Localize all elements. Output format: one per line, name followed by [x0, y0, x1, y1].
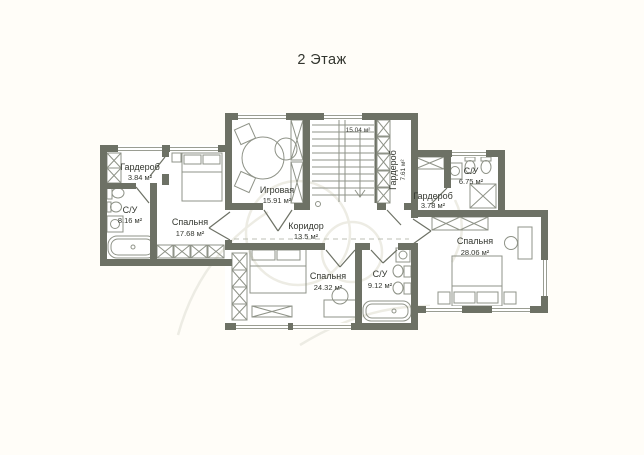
area-bathroom-right: 6.75 м² [459, 177, 484, 186]
area-wardrobe-right: 3.78 м² [421, 201, 446, 210]
area-corridor: 13.5 м² [294, 232, 319, 241]
label-bathroom-bottom: С/У [373, 269, 388, 279]
area-playroom: 15.91 м² [263, 196, 292, 205]
label-bathroom-right: С/У [464, 166, 479, 176]
label-bathroom-left: С/У [123, 205, 138, 215]
label-wardrobe-right: Гардероб [413, 191, 453, 201]
area-bedroom-right: 28.06 м² [461, 248, 490, 257]
area-bathroom-bottom: 9.12 м² [368, 281, 393, 290]
label-wardrobe-left: Гардероб [120, 162, 160, 172]
area-bedroom-left: 17.68 м² [176, 229, 205, 238]
area-wardrobe-stairs: 7.61 м² [400, 159, 407, 181]
area-bathroom-left: 8.16 м² [118, 216, 143, 225]
label-bedroom-bottom: Спальня [310, 271, 346, 281]
floorplan-drawing: Гардероб 3.84 м² С/У 8.16 м² Спальня 17.… [0, 0, 644, 455]
label-playroom: Игровая [260, 185, 294, 195]
label-wardrobe-stairs: Гардероб [388, 150, 398, 190]
label-corridor: Коридор [288, 221, 324, 231]
label-bedroom-right: Спальня [457, 236, 493, 246]
area-bedroom-bottom: 24.32 м² [314, 283, 343, 292]
area-wardrobe-left: 3.84 м² [128, 173, 153, 182]
label-bedroom-left: Спальня [172, 217, 208, 227]
area-stairwell: 15.04 м² [346, 127, 372, 134]
floorplan-page: 2 Этаж [0, 0, 644, 455]
